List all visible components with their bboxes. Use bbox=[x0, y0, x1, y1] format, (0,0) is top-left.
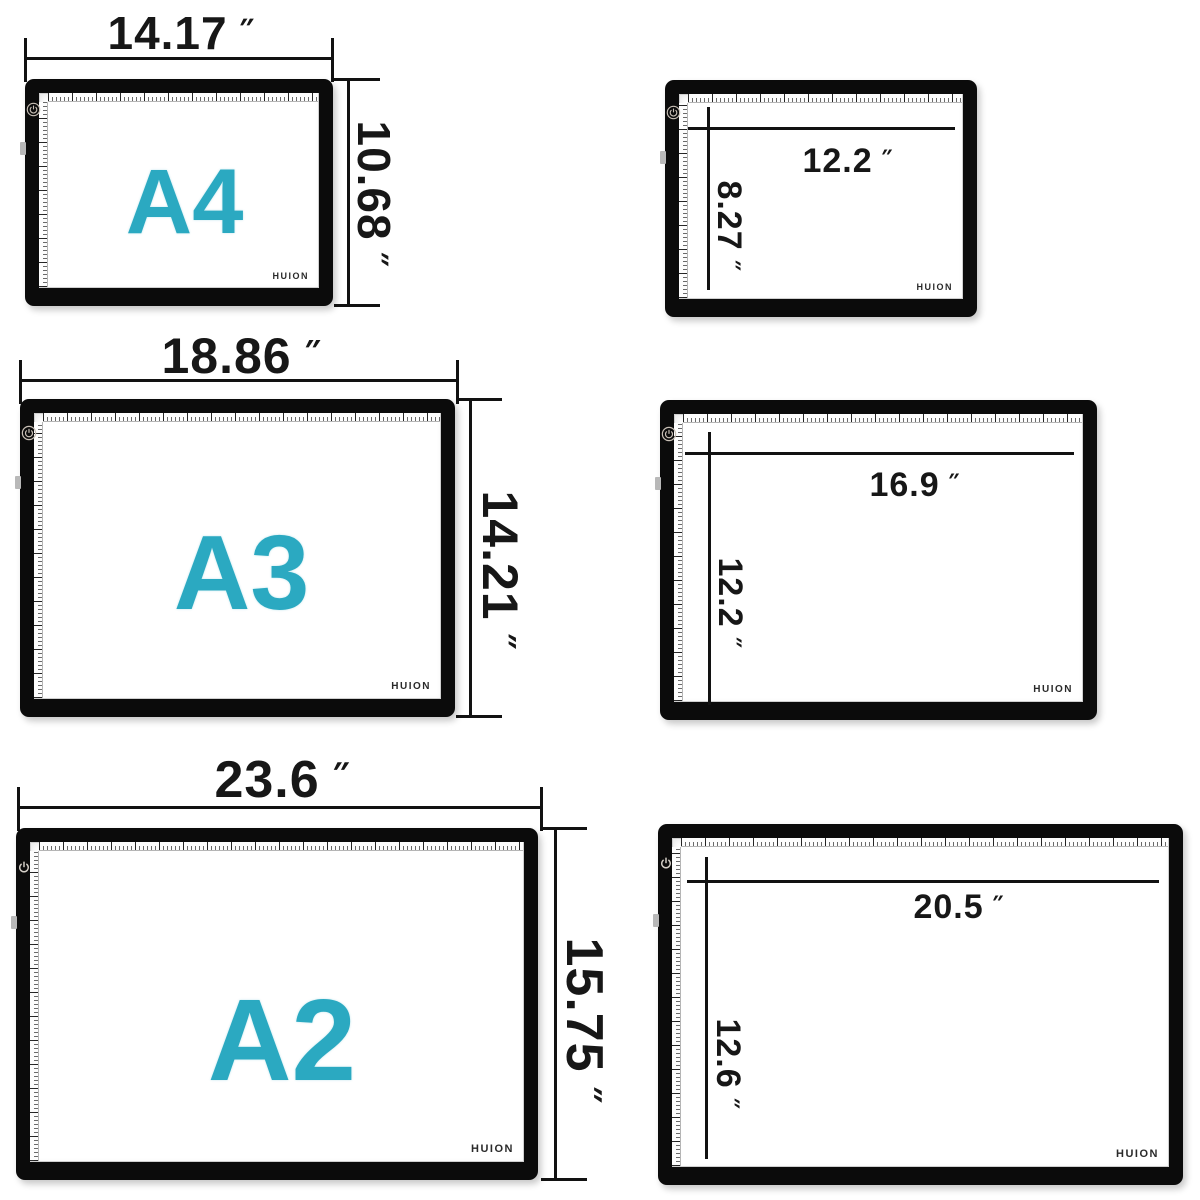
inch-mark: ″ bbox=[988, 894, 1005, 914]
panel-a2-inner-view: HUION 20.5″ 12.6″ bbox=[0, 0, 1200, 1200]
a2-active-width-label: 20.5″ bbox=[857, 890, 1057, 924]
ruler-left bbox=[672, 847, 681, 1166]
a2-active-height-line bbox=[705, 857, 708, 1159]
huion-logo: HUION bbox=[1116, 1148, 1159, 1160]
a2-active-height-label: 12.6″ bbox=[711, 1018, 745, 1105]
a2-active-width-line bbox=[687, 880, 1159, 883]
light-pad-a2: HUION bbox=[658, 824, 1183, 1185]
ruler-top bbox=[681, 838, 1168, 847]
power-button-icon bbox=[659, 856, 673, 870]
dimension-value: 20.5 bbox=[913, 888, 983, 926]
dimension-value: 12.6 bbox=[709, 1018, 747, 1088]
side-port-notch bbox=[653, 914, 659, 927]
product-dimension-diagram: 14.17″ 10.68″ A4 HUION bbox=[0, 0, 1200, 1200]
